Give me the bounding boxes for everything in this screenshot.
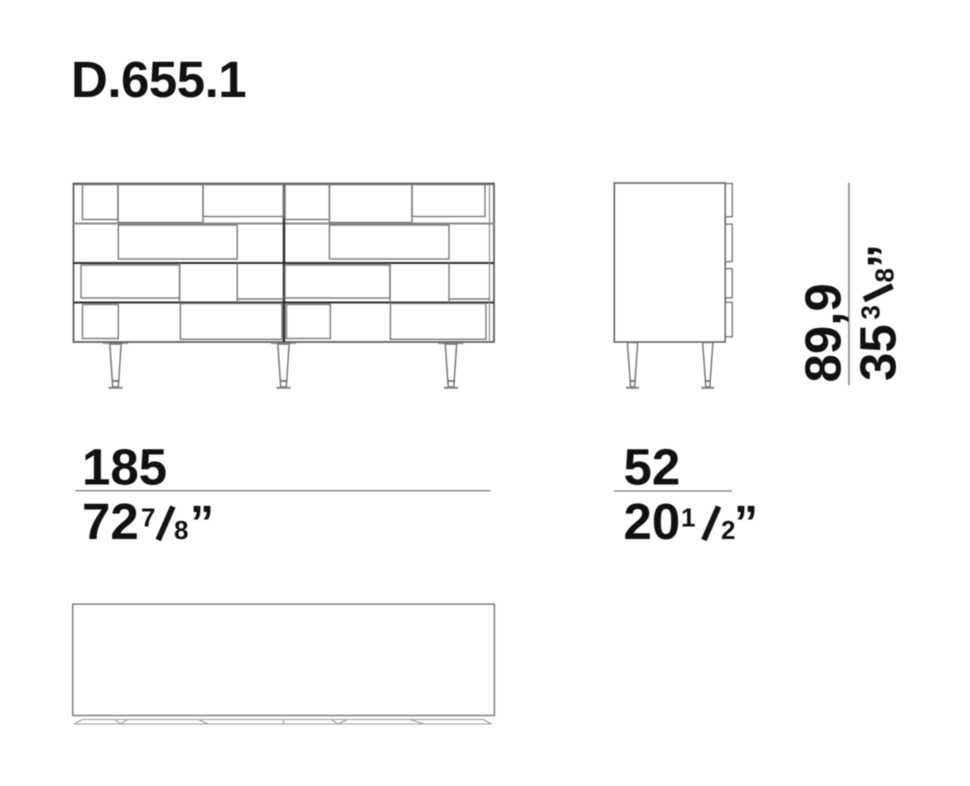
svg-text:”: ” xyxy=(190,497,214,550)
svg-text:D.655.1: D.655.1 xyxy=(71,51,246,108)
svg-text:1: 1 xyxy=(681,502,695,532)
svg-text:3: 3 xyxy=(856,305,886,319)
svg-text:72: 72 xyxy=(82,493,139,550)
svg-text:”: ” xyxy=(734,497,758,550)
svg-text:89,9: 89,9 xyxy=(795,283,852,382)
svg-text:35: 35 xyxy=(850,324,907,381)
svg-text:185: 185 xyxy=(82,439,167,496)
svg-text:7: 7 xyxy=(141,502,155,532)
svg-text:52: 52 xyxy=(624,439,681,496)
svg-text:20: 20 xyxy=(624,493,681,550)
svg-text:”: ” xyxy=(859,244,912,268)
svg-text:8: 8 xyxy=(174,515,188,545)
svg-text:8: 8 xyxy=(870,268,900,282)
